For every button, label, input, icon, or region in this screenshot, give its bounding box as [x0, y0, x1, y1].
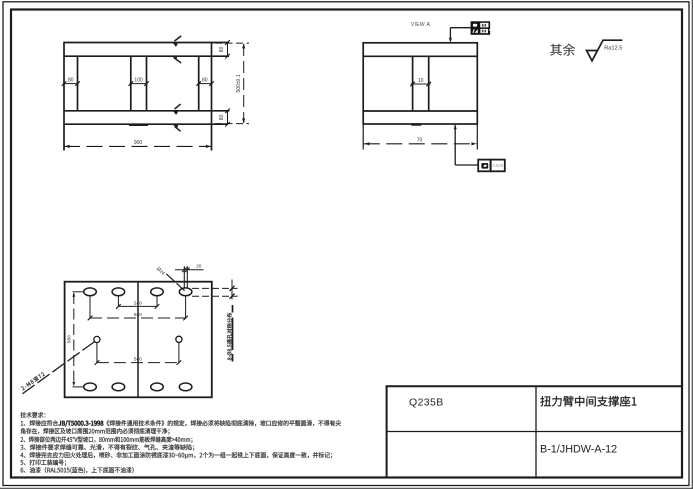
svg-text:560: 560 [134, 356, 142, 362]
svg-text:20: 20 [196, 264, 202, 270]
svg-text:VIEW A: VIEW A [411, 22, 431, 28]
svg-text:580: 580 [66, 335, 72, 343]
svg-text:80: 80 [219, 115, 225, 121]
svg-text:70: 70 [417, 137, 423, 143]
svg-text:560: 560 [134, 312, 142, 318]
svg-text:B-1/JHDW-A-12: B-1/JHDW-A-12 [540, 444, 617, 456]
svg-text:10: 10 [418, 78, 424, 84]
svg-text:500±0.1: 500±0.1 [236, 74, 242, 92]
svg-text:100: 100 [134, 78, 143, 84]
svg-text:Ra12.5: Ra12.5 [604, 45, 622, 51]
svg-text:240: 240 [134, 300, 142, 306]
svg-text:80: 80 [68, 78, 74, 84]
svg-text:80: 80 [219, 46, 225, 52]
svg-text:900: 900 [134, 140, 143, 146]
svg-text:0.025: 0.025 [493, 163, 504, 168]
svg-text:Q235B: Q235B [409, 396, 444, 408]
svg-text:80: 80 [202, 78, 208, 84]
